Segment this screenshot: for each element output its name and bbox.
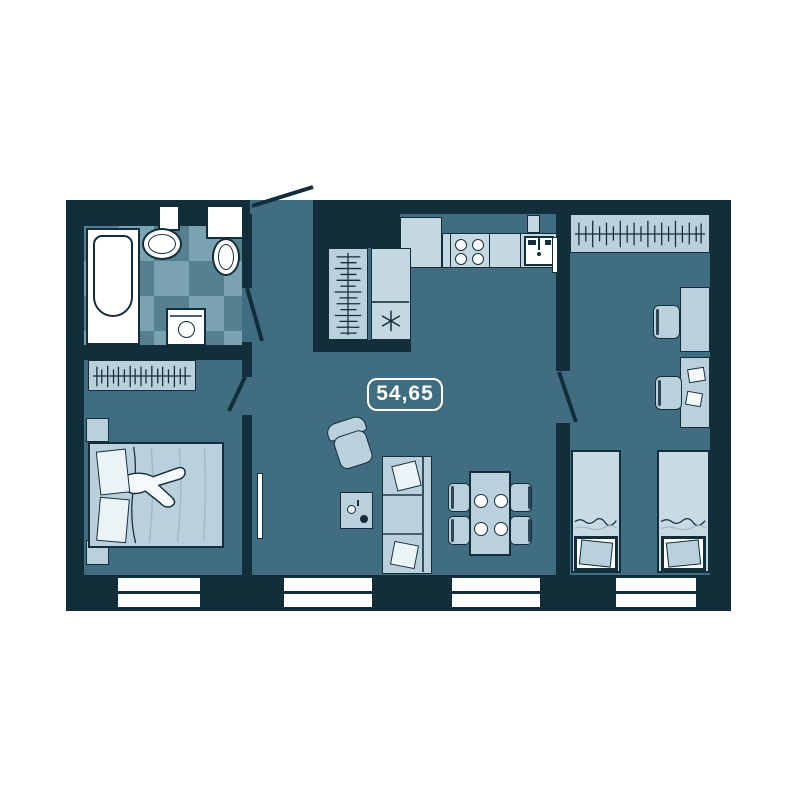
dining-chair-icon <box>510 483 532 512</box>
burner <box>455 253 467 265</box>
sofa-seat-divider <box>383 494 422 496</box>
sofa-pillow <box>391 460 422 491</box>
bathtub-basin <box>93 235 133 317</box>
toilet-bowl <box>218 244 234 270</box>
decor-bowl <box>347 505 356 514</box>
dining-chair-icon <box>510 516 532 545</box>
hangers-icon <box>329 249 367 339</box>
decor-candle <box>357 500 359 506</box>
hangers-icon <box>571 215 709 252</box>
faucet-handle <box>528 240 536 245</box>
pillow <box>666 539 701 567</box>
window <box>284 594 372 607</box>
kitchen-sink-icon <box>524 236 554 266</box>
drain <box>537 252 541 256</box>
window <box>118 578 200 591</box>
plate <box>474 494 488 508</box>
burner <box>455 239 467 251</box>
toilet-icon <box>212 238 240 276</box>
dining-chair-icon <box>448 516 470 545</box>
area-value: 54,65 <box>376 382 434 405</box>
kitchen-asterisk-icon <box>377 307 405 335</box>
bathroom-bedroom-wall <box>66 345 252 360</box>
window <box>616 594 696 607</box>
counter-divider <box>372 301 409 303</box>
pillow <box>96 497 130 543</box>
nightstand <box>86 418 109 442</box>
coffee-table-icon <box>340 492 373 529</box>
plate <box>474 522 488 536</box>
living-kidsroom-wall-upper <box>556 214 570 371</box>
window <box>118 594 200 607</box>
desk-icon <box>680 287 710 352</box>
floor-plan-canvas: 54,65 <box>0 0 800 800</box>
window <box>284 578 372 591</box>
window <box>452 594 540 607</box>
window <box>616 578 696 591</box>
sofa-icon <box>382 456 432 574</box>
chair-back <box>451 519 454 542</box>
hall-closet-side-wall <box>313 200 328 352</box>
stove-icon <box>450 233 490 268</box>
counter-tab <box>527 215 540 233</box>
hall-wardrobe <box>328 248 368 340</box>
pillow <box>579 539 613 567</box>
bedroom-hall-wall-lower <box>242 415 252 575</box>
burner <box>472 253 484 265</box>
papers-icon <box>685 391 703 408</box>
single-bed-icon <box>657 450 710 573</box>
washing-machine-icon <box>166 308 206 346</box>
decor-vase <box>360 515 368 523</box>
tv-icon <box>552 237 558 273</box>
tv-icon <box>257 473 263 539</box>
bathroom-sink-icon <box>142 228 182 260</box>
living-kidsroom-wall-lower <box>556 423 570 575</box>
sofa-seat-divider <box>383 533 422 535</box>
burner <box>472 239 484 251</box>
desk-chair-icon <box>653 305 680 339</box>
kitchen-counter-column <box>371 248 411 340</box>
chair-back <box>528 519 531 542</box>
sofa-pillow <box>390 541 419 569</box>
bathtub-icon <box>86 228 140 345</box>
chair-back <box>451 486 454 509</box>
plate <box>494 494 508 508</box>
bedroom-hall-wall-upper <box>242 360 252 377</box>
hall-closet-base-wall <box>313 340 411 352</box>
sink-bowl <box>148 234 176 254</box>
desk-chair-icon <box>655 376 682 410</box>
single-bed-icon <box>571 450 621 573</box>
pillow <box>96 449 130 496</box>
faucet <box>538 238 540 250</box>
chair-back <box>528 486 531 509</box>
washer-panel-line <box>170 315 202 317</box>
plate <box>494 522 508 536</box>
kidsroom-wardrobe <box>570 214 710 253</box>
dining-table-icon <box>469 471 511 556</box>
window <box>452 578 540 591</box>
washer-drum <box>178 321 195 338</box>
chair-back <box>656 309 659 335</box>
bedroom-wardrobe <box>88 360 196 391</box>
sofa-backrest-line <box>422 457 424 572</box>
chair-back <box>658 380 661 406</box>
toilet-tank <box>206 205 244 239</box>
hangers-icon <box>89 361 195 390</box>
entrance-opening <box>250 200 313 214</box>
faucet-handle <box>545 240 551 245</box>
double-bed-icon <box>88 442 224 548</box>
area-label: 54,65 <box>367 378 443 411</box>
papers-icon <box>687 367 706 383</box>
dining-chair-icon <box>448 483 470 512</box>
